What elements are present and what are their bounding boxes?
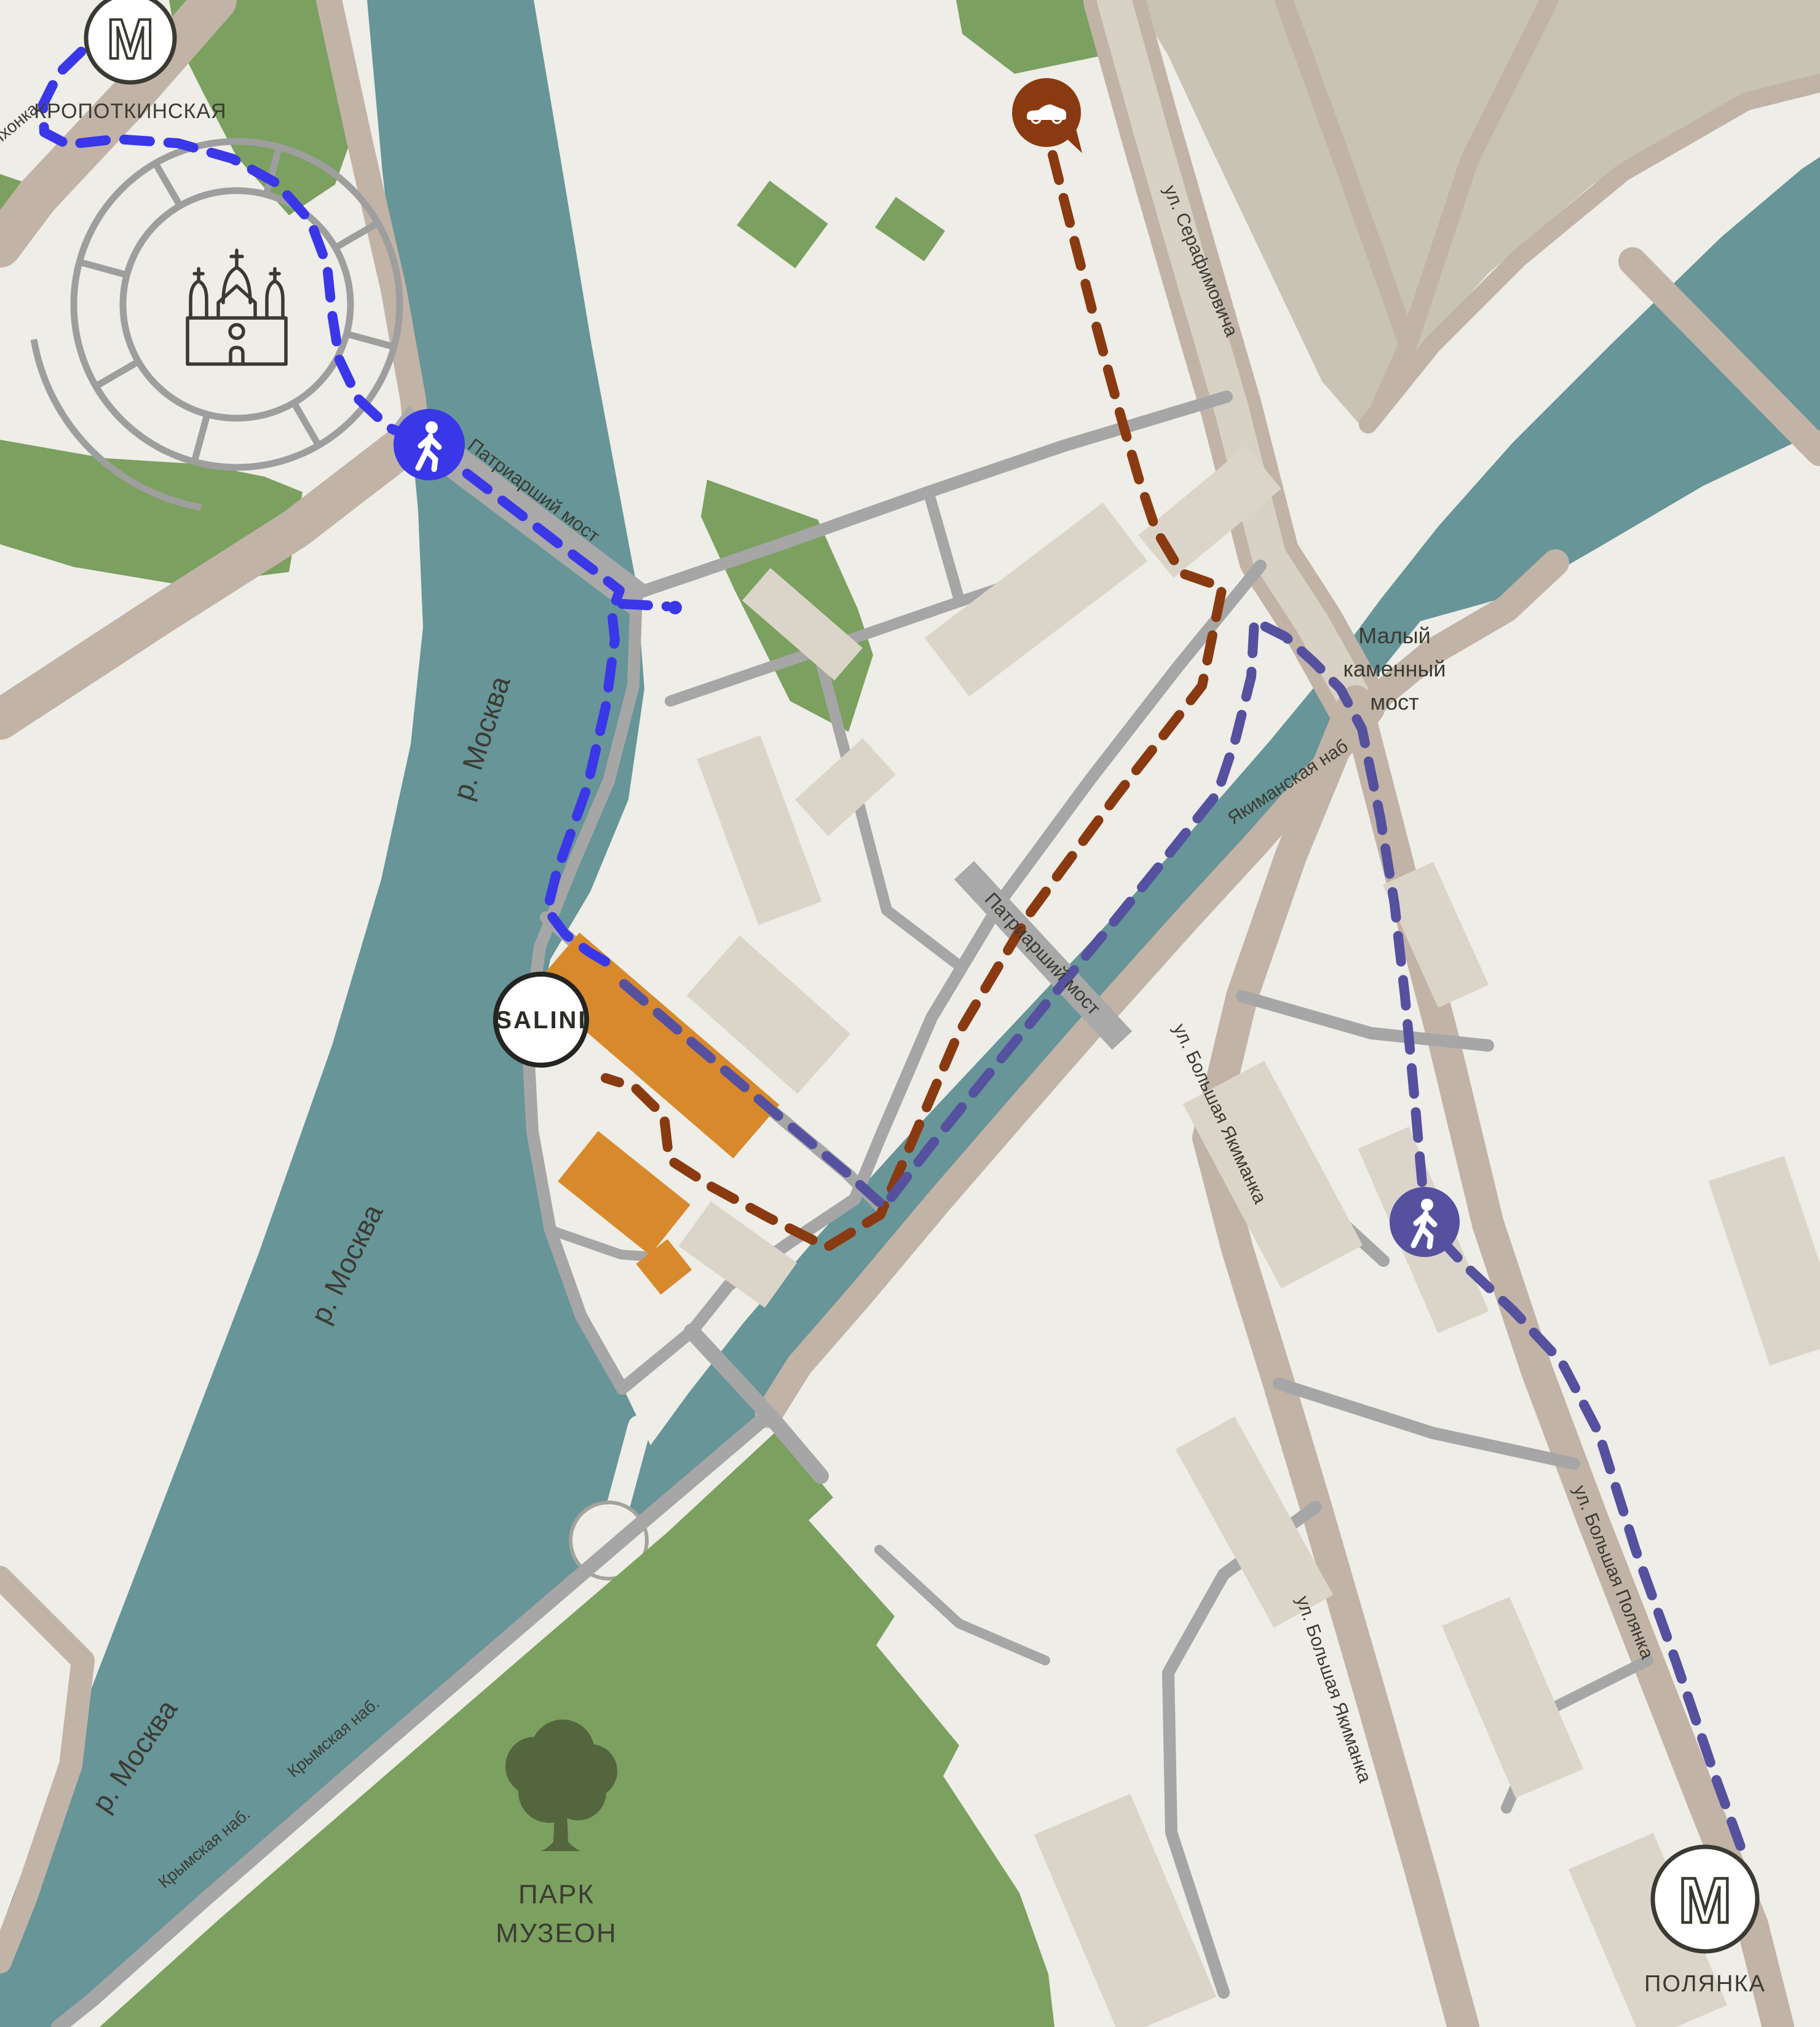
bridge-label-maly-3: мост [1370,689,1418,715]
salini-label: SALINI [495,1007,587,1034]
pedestrian-icon[interactable] [394,409,465,480]
station-label-polyanka: ПОЛЯНКА [1644,1971,1766,1997]
metro-icon-glyph: М [1679,1865,1732,1937]
walk-route-endpoint [668,601,682,614]
map-canvas: М КРОПОТКИНСКАЯ М ПОЛЯНКА SALINI Волхонк… [0,0,1820,2027]
bridge-label-maly-2: каменный [1343,656,1446,681]
metro-icon-glyph: М [107,8,154,71]
salini-building-c[interactable] [652,1252,676,1282]
park-label-line2: МУЗЕОН [496,1918,617,1948]
park-label-line1: ПАРК [518,1879,595,1910]
station-label-kropotkinskaya: КРОПОТКИНСКАЯ [34,100,226,123]
map-stage: М КРОПОТКИНСКАЯ М ПОЛЯНКА SALINI Волхонк… [0,0,1820,2027]
pedestrian-icon[interactable] [1390,1187,1460,1257]
salini-marker[interactable]: SALINI [495,974,587,1065]
metro-marker-polyanka[interactable]: М ПОЛЯНКА [1644,1847,1766,1997]
bridge-label-maly-1: Малый [1358,623,1430,648]
